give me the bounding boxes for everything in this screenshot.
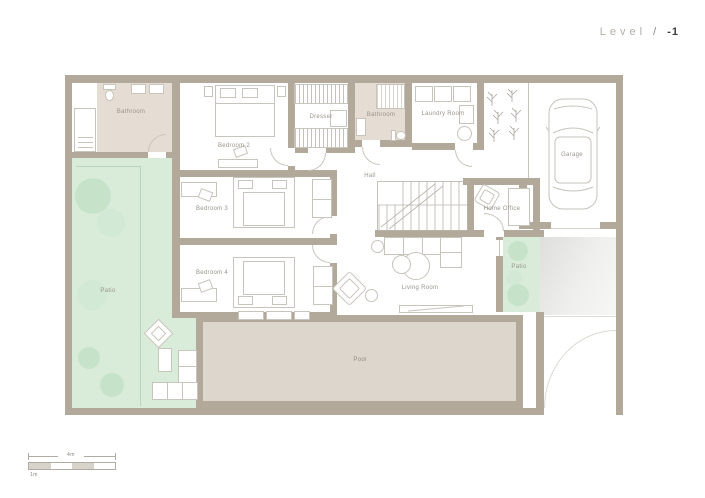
scale-segment [94,463,116,469]
sofa-cushion-line [179,366,196,367]
wall [467,230,544,237]
lounger [238,311,264,320]
floor-plan-canvas: Level / -1 [0,0,705,498]
washer-icon [434,86,452,102]
side-table [365,289,378,302]
room-label-bedroom-2: Bedroom 2 [204,143,264,150]
room-label-dresser: Dresser [291,114,351,121]
washer-icon [453,86,471,102]
tree-icon [100,373,124,397]
scale-segment [51,463,73,469]
lounger [266,311,292,320]
wall [616,83,623,415]
wall [65,75,623,83]
outdoor-sofa [152,382,198,400]
scale-segment [72,463,94,469]
pillow [272,180,287,189]
stairs [377,181,468,231]
tree-icon [78,347,100,369]
tree-icon [507,284,529,306]
shower [376,84,405,109]
pillow [238,180,253,189]
sliding-door-line [499,240,500,256]
door-arc [312,216,330,234]
closet [313,266,333,305]
outdoor-table [158,348,172,372]
glass-partition-line [528,83,529,178]
title-level-word: Level [600,26,646,38]
door-arc [362,147,380,165]
wall [536,312,544,415]
pillow [238,296,253,305]
drawing-title: Level / -1 [600,26,679,38]
desk [181,288,217,302]
lawn-edge-line [76,166,140,167]
room-label-bathroom-1: Bathroom [101,109,161,116]
room-label-pool: Pool [330,357,390,364]
room-label-bedroom-4: Bedroom 4 [182,270,242,277]
scale-unit-label: 1m [30,472,38,478]
sofa-cushion-line [441,252,461,253]
toilet-icon [396,131,406,140]
wall [180,170,337,177]
scale-total-label: 4m [58,452,84,458]
nightstand [204,86,213,97]
room-label-patio-right: Patio [489,264,549,271]
sofa-cushion-line [422,238,423,254]
room-label-laundry: Laundry Room [413,111,473,118]
wall [600,222,616,229]
door-opening [288,148,295,166]
door-opening [455,143,473,150]
door-opening [362,140,380,147]
tree-icon [75,178,111,214]
plants-icon [482,86,526,144]
scale-segment [29,463,51,469]
wall [375,230,467,237]
title-level-number: -1 [667,26,679,38]
shower [74,108,96,152]
door-opening [330,216,337,234]
pillow [220,88,236,98]
door-arc [312,245,330,263]
blanket-line [216,103,274,104]
door-arc [484,213,504,231]
ramp-edge-line [544,316,616,317]
garage-door-threshold [551,228,600,229]
desk [218,159,258,168]
lawn-edge-line [140,166,141,406]
scale-tick [115,453,116,460]
blanket [243,192,285,226]
sink-icon [149,84,164,94]
room-label-living-room: Living Room [390,285,450,292]
nightstand [277,86,286,97]
door-opening [330,245,337,263]
room-label-garage: Garage [542,152,602,159]
sofa-cushion-line [182,383,183,399]
coffee-table [392,255,411,274]
wall [463,178,540,185]
sink-icon [131,84,146,94]
sofa-cushion-line [167,383,168,399]
tree-icon [77,280,107,310]
laundry-basket-icon [457,126,472,141]
closet-hanging-rail [294,84,348,104]
room-label-bedroom-3: Bedroom 3 [182,206,242,213]
door-opening [148,152,166,158]
closet [312,179,332,218]
door-arc [308,153,326,171]
room-label-hall: Hall [340,173,400,180]
wall [180,238,337,245]
closet-hanging-rail [294,128,348,148]
door-arc [455,150,472,167]
wall [65,83,72,415]
sink-icon [356,118,366,136]
room-label-home-office: Home Office [472,206,532,213]
driveway-ramp [540,237,616,315]
pillow [272,296,287,305]
sofa-cushion-line [403,238,404,254]
tree-icon [97,209,125,237]
pillow [242,88,258,98]
door-arc [270,148,288,166]
wall [65,408,544,415]
scale-tick [28,453,29,460]
washer-icon [415,86,433,102]
blanket [243,261,285,295]
side-table [371,240,384,253]
room-label-patio-left: Patio [78,288,138,295]
driveway-arc [544,330,616,408]
tree-icon [508,241,528,261]
wall [172,82,180,318]
lounger [294,311,310,320]
scale-bar [28,462,116,470]
toilet-icon [105,90,114,101]
door-opening [484,230,504,237]
title-separator: / [653,26,660,38]
room-label-bathroom-2: Bathroom [351,112,411,119]
